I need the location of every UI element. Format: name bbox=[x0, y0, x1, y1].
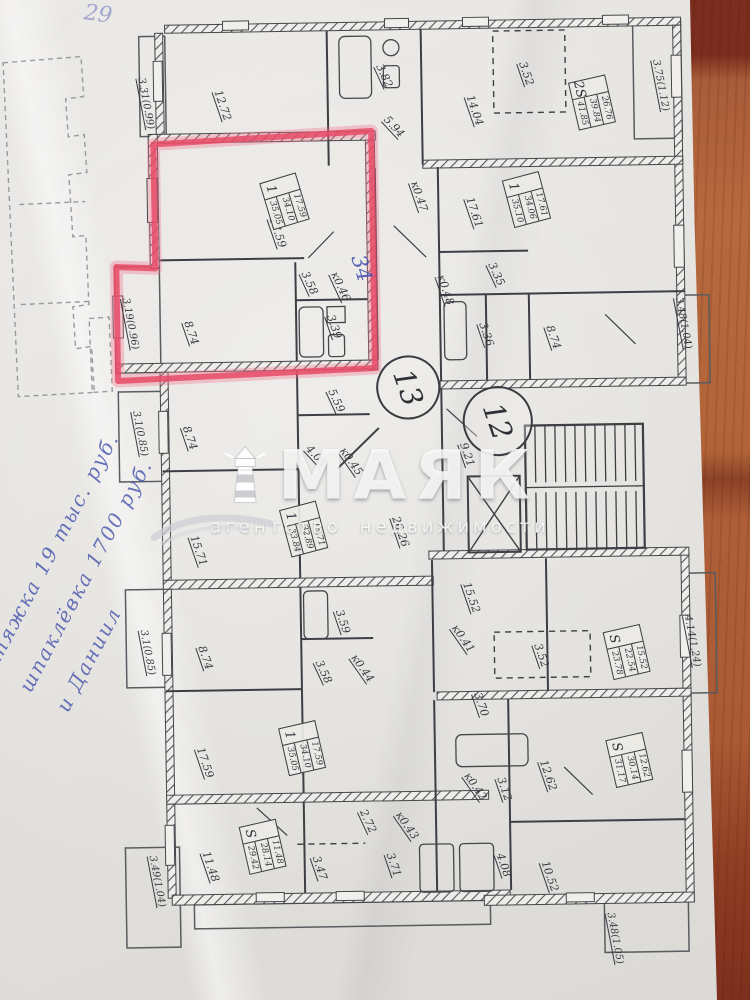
room-area-label: 10.52 bbox=[539, 859, 562, 893]
room-area-label: 4.05 bbox=[303, 443, 329, 470]
room-area-label: 14.04 bbox=[464, 93, 487, 127]
room-area-label: 12.62 bbox=[537, 758, 560, 792]
room-area-label: 8.74 bbox=[195, 644, 215, 671]
room-area-label: 17.61 bbox=[463, 195, 486, 229]
room-area-label: 3.59 bbox=[333, 608, 353, 635]
entrance-number-stamp: 13 bbox=[368, 347, 449, 428]
room-area-label: 4.14(1.24) bbox=[682, 614, 703, 667]
room-area-label: 26.26 bbox=[389, 515, 412, 549]
apartment-summary-box: S12.6230.1431.17 bbox=[605, 732, 653, 788]
room-area-label: к0.41 bbox=[449, 622, 477, 655]
room-area-label: 3.35 bbox=[485, 260, 507, 288]
room-area-label: 3.19(0.96) bbox=[120, 297, 141, 350]
room-area-label: к0.47 bbox=[408, 179, 430, 213]
room-area-label: 8.74 bbox=[543, 323, 563, 350]
room-area-label: 3.1(0.85) bbox=[138, 629, 157, 676]
apartment-summary-box: 115.7132.8933.84 bbox=[279, 501, 329, 558]
room-area-label: к0.45 bbox=[337, 445, 365, 478]
room-area-label: к0.42 bbox=[461, 770, 489, 803]
room-area-label: 3.12 bbox=[494, 775, 514, 802]
room-area-label: 3.36 bbox=[476, 321, 496, 348]
room-area-label: к0.44 bbox=[348, 652, 376, 685]
room-area-label: 15.52 bbox=[460, 580, 483, 614]
room-area-label: к0.46 bbox=[328, 270, 353, 304]
apartment-summary-box: S11.4828.1429.42 bbox=[238, 819, 286, 875]
floor-plan-photo: 3.31(0.99)12.723.825.943.5214.043.75(1.1… bbox=[0, 0, 750, 1000]
room-area-label: 17.59 bbox=[194, 746, 217, 780]
room-area-label: к0.43 bbox=[393, 809, 421, 842]
room-area-label: 3.71 bbox=[384, 851, 404, 878]
room-area-label: 3.47 bbox=[310, 854, 330, 881]
room-area-label: 11.48 bbox=[199, 850, 222, 884]
room-area-label: 15.71 bbox=[188, 534, 211, 568]
pen-corner-mark: 29 bbox=[82, 0, 113, 29]
room-area-label: 3.52 bbox=[516, 60, 536, 87]
room-area-label: 3.58 bbox=[313, 658, 335, 686]
apartment-summary-box: 117.6134.0635.10 bbox=[501, 171, 551, 228]
room-area-label: 4.08 bbox=[494, 851, 514, 878]
room-area-label: 5.59 bbox=[325, 387, 347, 415]
apartment-summary-box: 2S26.7639.8441.85 bbox=[568, 74, 616, 130]
apartment-summary-box: S15.5222.5423.78 bbox=[602, 624, 650, 680]
room-area-label: 3.75(1.12) bbox=[650, 59, 671, 112]
room-area-label: 3.48(1.04) bbox=[673, 296, 694, 349]
room-area-label: 3.52 bbox=[531, 642, 551, 669]
room-area-label: 2.72 bbox=[357, 807, 379, 835]
room-area-label: 12.72 bbox=[212, 88, 235, 122]
apartment-summary-box: 117.5934.1035.05 bbox=[278, 720, 326, 776]
room-area-label: 3.82 bbox=[373, 62, 395, 90]
room-area-label: 3.70 bbox=[471, 691, 491, 718]
room-area-label: 3.39 bbox=[324, 313, 344, 340]
room-area-label: 3.49(1.04) bbox=[147, 855, 168, 908]
room-area-label: 3.48(1.05) bbox=[605, 912, 626, 965]
room-area-label: к0.48 bbox=[435, 273, 457, 307]
room-area-label: 8.74 bbox=[181, 319, 201, 346]
room-area-label: 3.31(0.99) bbox=[135, 77, 156, 130]
room-area-label: 3.58 bbox=[299, 269, 321, 297]
room-area-label: 5.94 bbox=[381, 113, 407, 140]
